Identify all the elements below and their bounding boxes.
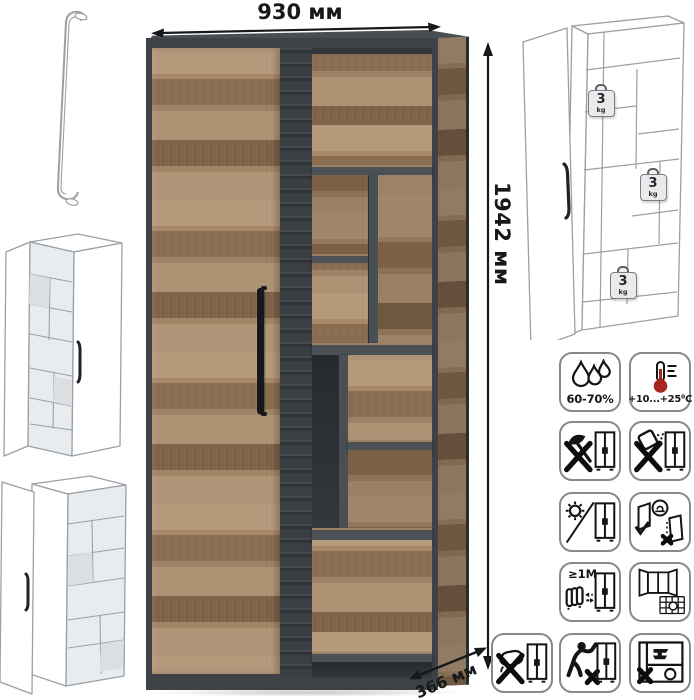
ventilate-room-icon	[629, 562, 691, 622]
shelf-unit	[312, 48, 432, 678]
shelf-compartment	[312, 540, 432, 652]
load-value: 3	[648, 177, 657, 190]
shelf-dark-niche	[312, 355, 338, 528]
shelf-compartment	[378, 175, 432, 343]
height-dimension-arrow	[478, 42, 498, 670]
distance-label: ≥1M	[568, 569, 597, 581]
shelf-compartment	[312, 175, 368, 254]
load-value: 3	[596, 93, 605, 106]
wireframe-side-view-closed	[2, 228, 128, 466]
door-handle	[257, 288, 264, 414]
no-direct-sunlight-icon	[559, 492, 621, 552]
shelf-load-badge: 3 kg	[588, 84, 614, 117]
shelf-load-badge: 3 kg	[640, 168, 666, 201]
shelf-compartment	[312, 54, 432, 165]
load-unit: kg	[597, 107, 606, 114]
product-infographic: 930 мм 1942 мм 366 мм	[0, 0, 694, 700]
open-doors-carefully-icon	[629, 492, 691, 552]
height-dimension-label: 1942 мм	[490, 182, 514, 286]
handle-detail-drawing	[26, 4, 110, 228]
wireframe-open-door-diagram	[520, 12, 694, 340]
load-value: 3	[618, 275, 627, 288]
width-dimension-arrow	[150, 20, 442, 38]
humidity-icon: 60-70%	[559, 352, 621, 412]
temperature-icon: +10...+25⁰C	[629, 352, 691, 412]
no-leaning-icon	[559, 633, 621, 693]
humidity-label: 60-70%	[566, 394, 613, 406]
shelf-load-badge: 3 kg	[610, 266, 636, 299]
cabinet-center-spine	[280, 48, 312, 674]
shelf-compartment	[348, 355, 432, 440]
shelf-compartment	[348, 450, 432, 528]
no-abrasive-sponge-icon	[491, 633, 553, 693]
no-spill-liquids-icon	[629, 421, 691, 481]
heater-distance-icon: ≥1M	[559, 562, 621, 622]
wireframe-side-view-open	[0, 472, 130, 700]
load-unit: kg	[619, 289, 628, 296]
temperature-label: +10...+25⁰C	[628, 395, 692, 405]
shelf-compartment	[312, 263, 368, 343]
no-sharp-tools-icon	[559, 421, 621, 481]
no-heavy-objects-on-top-icon	[629, 633, 691, 693]
load-unit: kg	[649, 191, 658, 198]
cabinet-side-panel	[438, 37, 469, 686]
